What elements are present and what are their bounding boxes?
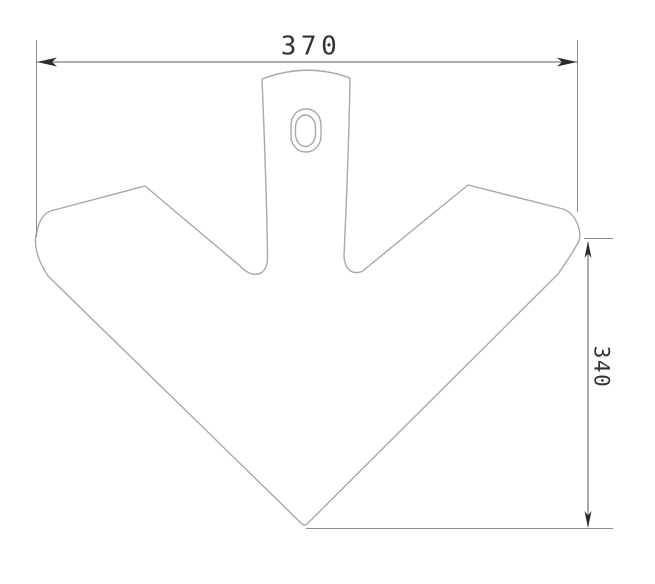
technical-drawing-canvas: 370 340	[0, 0, 655, 584]
part-geometry	[35, 70, 580, 525]
height-dimension-label: 340	[590, 346, 614, 388]
sweep-blade-drawing: 370 340	[0, 0, 655, 584]
width-dimension-label: 370	[281, 32, 341, 62]
sweep-blade-outline	[35, 70, 580, 525]
